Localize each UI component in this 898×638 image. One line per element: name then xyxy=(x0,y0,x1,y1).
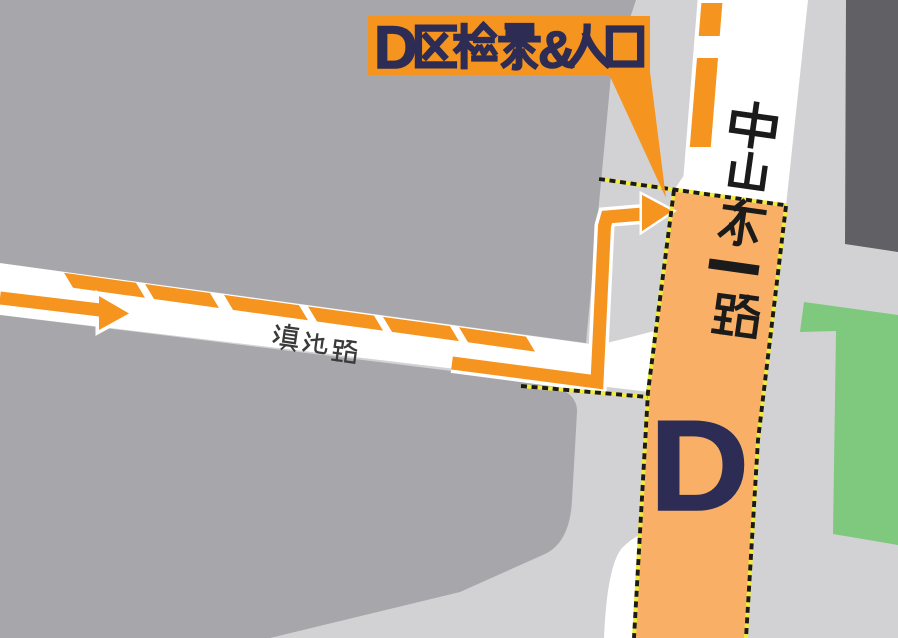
svg-text:D: D xyxy=(374,14,417,81)
svg-text:D: D xyxy=(650,394,750,538)
svg-text:&: & xyxy=(538,22,576,80)
